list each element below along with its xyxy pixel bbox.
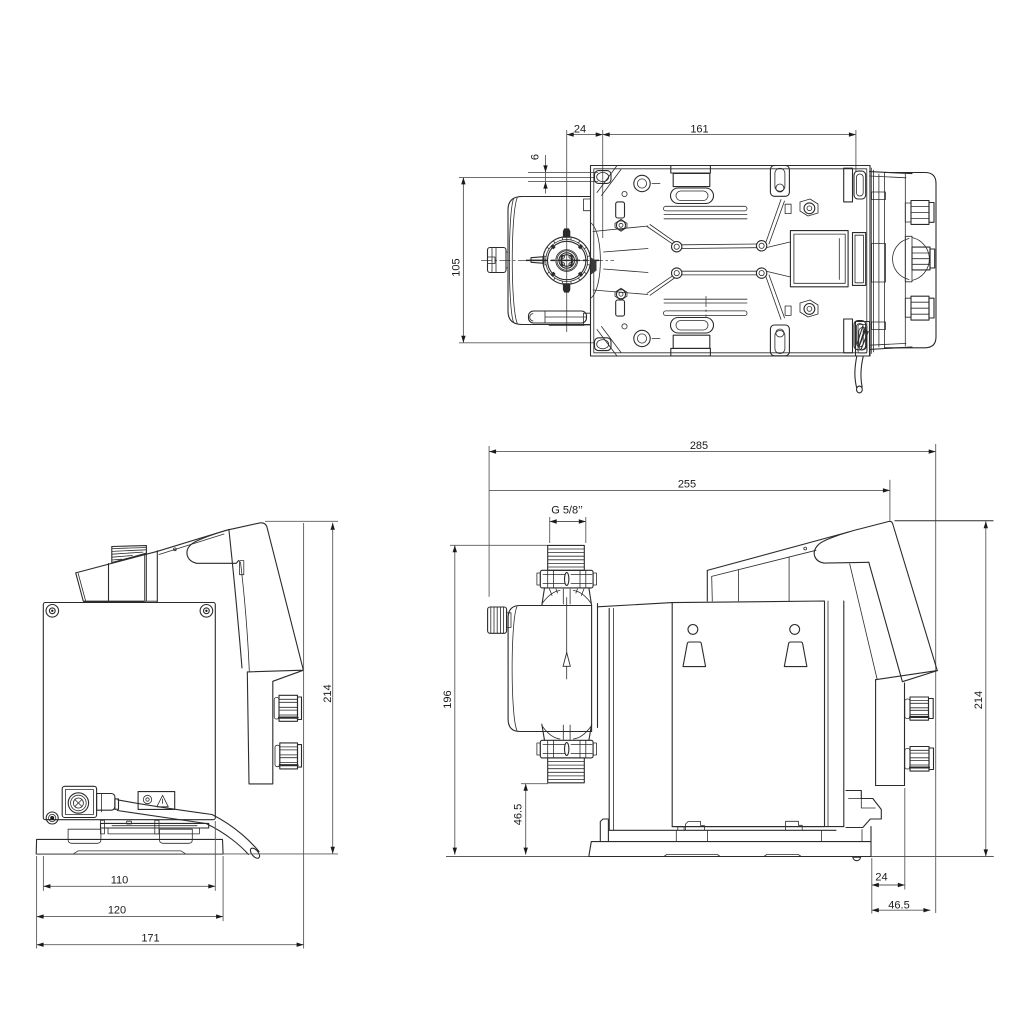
- svg-text:255: 255: [678, 479, 696, 491]
- svg-text:214: 214: [322, 684, 334, 702]
- svg-text:120: 120: [108, 905, 126, 917]
- svg-text:24: 24: [574, 124, 586, 136]
- svg-text:285: 285: [690, 440, 708, 452]
- svg-text:161: 161: [690, 124, 708, 136]
- svg-text:171: 171: [141, 933, 159, 945]
- svg-text:110: 110: [111, 875, 129, 887]
- svg-text:46.5: 46.5: [513, 804, 525, 825]
- svg-text:214: 214: [973, 691, 985, 709]
- svg-text:46.5: 46.5: [888, 900, 909, 912]
- svg-text:196: 196: [442, 690, 454, 708]
- svg-text:G 5/8’’: G 5/8’’: [551, 505, 583, 517]
- svg-text:24: 24: [875, 872, 887, 884]
- svg-text:6: 6: [529, 154, 541, 160]
- svg-text:105: 105: [451, 258, 463, 276]
